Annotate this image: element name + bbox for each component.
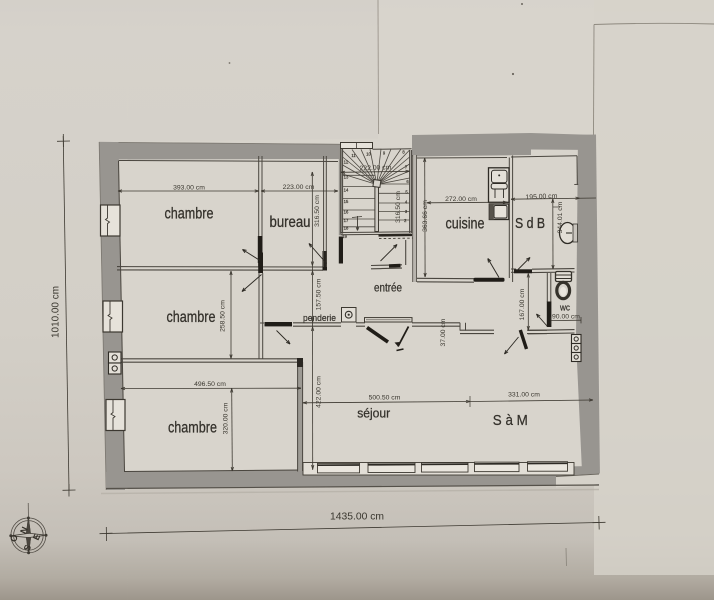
svg-text:17: 17 [344,218,349,223]
svg-text:393.00 cm: 393.00 cm [173,184,205,191]
svg-text:10: 10 [366,152,371,157]
svg-text:cuisine: cuisine [446,216,485,233]
svg-text:séjour: séjour [357,406,391,421]
svg-text:entrée: entrée [374,283,402,295]
svg-text:167.00 cm: 167.00 cm [519,288,526,320]
svg-text:chambre: chambre [165,206,214,223]
svg-text:331.00 cm: 331.00 cm [508,391,540,398]
svg-text:37.00 cm: 37.00 cm [440,318,447,346]
svg-text:S à M: S à M [493,412,528,429]
svg-text:bureau: bureau [270,214,311,231]
svg-text:S d B: S d B [515,215,545,232]
svg-text:363.66 cm: 363.66 cm [422,200,429,232]
svg-text:157.50 cm: 157.50 cm [315,278,322,310]
svg-text:chambre: chambre [167,309,216,326]
svg-text:316.50 cm: 316.50 cm [314,195,321,227]
svg-text:11: 11 [351,153,356,158]
svg-text:258.50 cm: 258.50 cm [220,300,227,332]
svg-text:320.00 cm: 320.00 cm [223,402,230,434]
svg-text:223.00 cm: 223.00 cm [283,184,315,191]
svg-text:18: 18 [344,225,349,230]
svg-text:500.50 cm: 500.50 cm [369,394,401,401]
svg-text:90.00 cm: 90.00 cm [552,314,580,321]
svg-text:222.00 cm: 222.00 cm [359,164,391,172]
svg-text:penderie: penderie [303,313,336,324]
svg-text:496.50 cm: 496.50 cm [194,381,226,388]
svg-text:16: 16 [344,210,349,215]
svg-text:wc: wc [559,303,570,313]
svg-text:272.00 cm: 272.00 cm [445,196,477,203]
svg-text:15: 15 [344,199,349,204]
svg-text:13: 13 [344,175,349,180]
svg-text:12: 12 [344,160,349,165]
svg-text:14: 14 [344,188,349,193]
svg-text:1010.00 cm: 1010.00 cm [51,286,62,338]
svg-text:chambre: chambre [168,420,217,437]
svg-text:1435.00 cm: 1435.00 cm [330,512,384,523]
svg-text:316.50 cm: 316.50 cm [395,191,402,223]
svg-text:19: 19 [342,234,347,239]
svg-text:344.01 cm: 344.01 cm [557,201,564,233]
